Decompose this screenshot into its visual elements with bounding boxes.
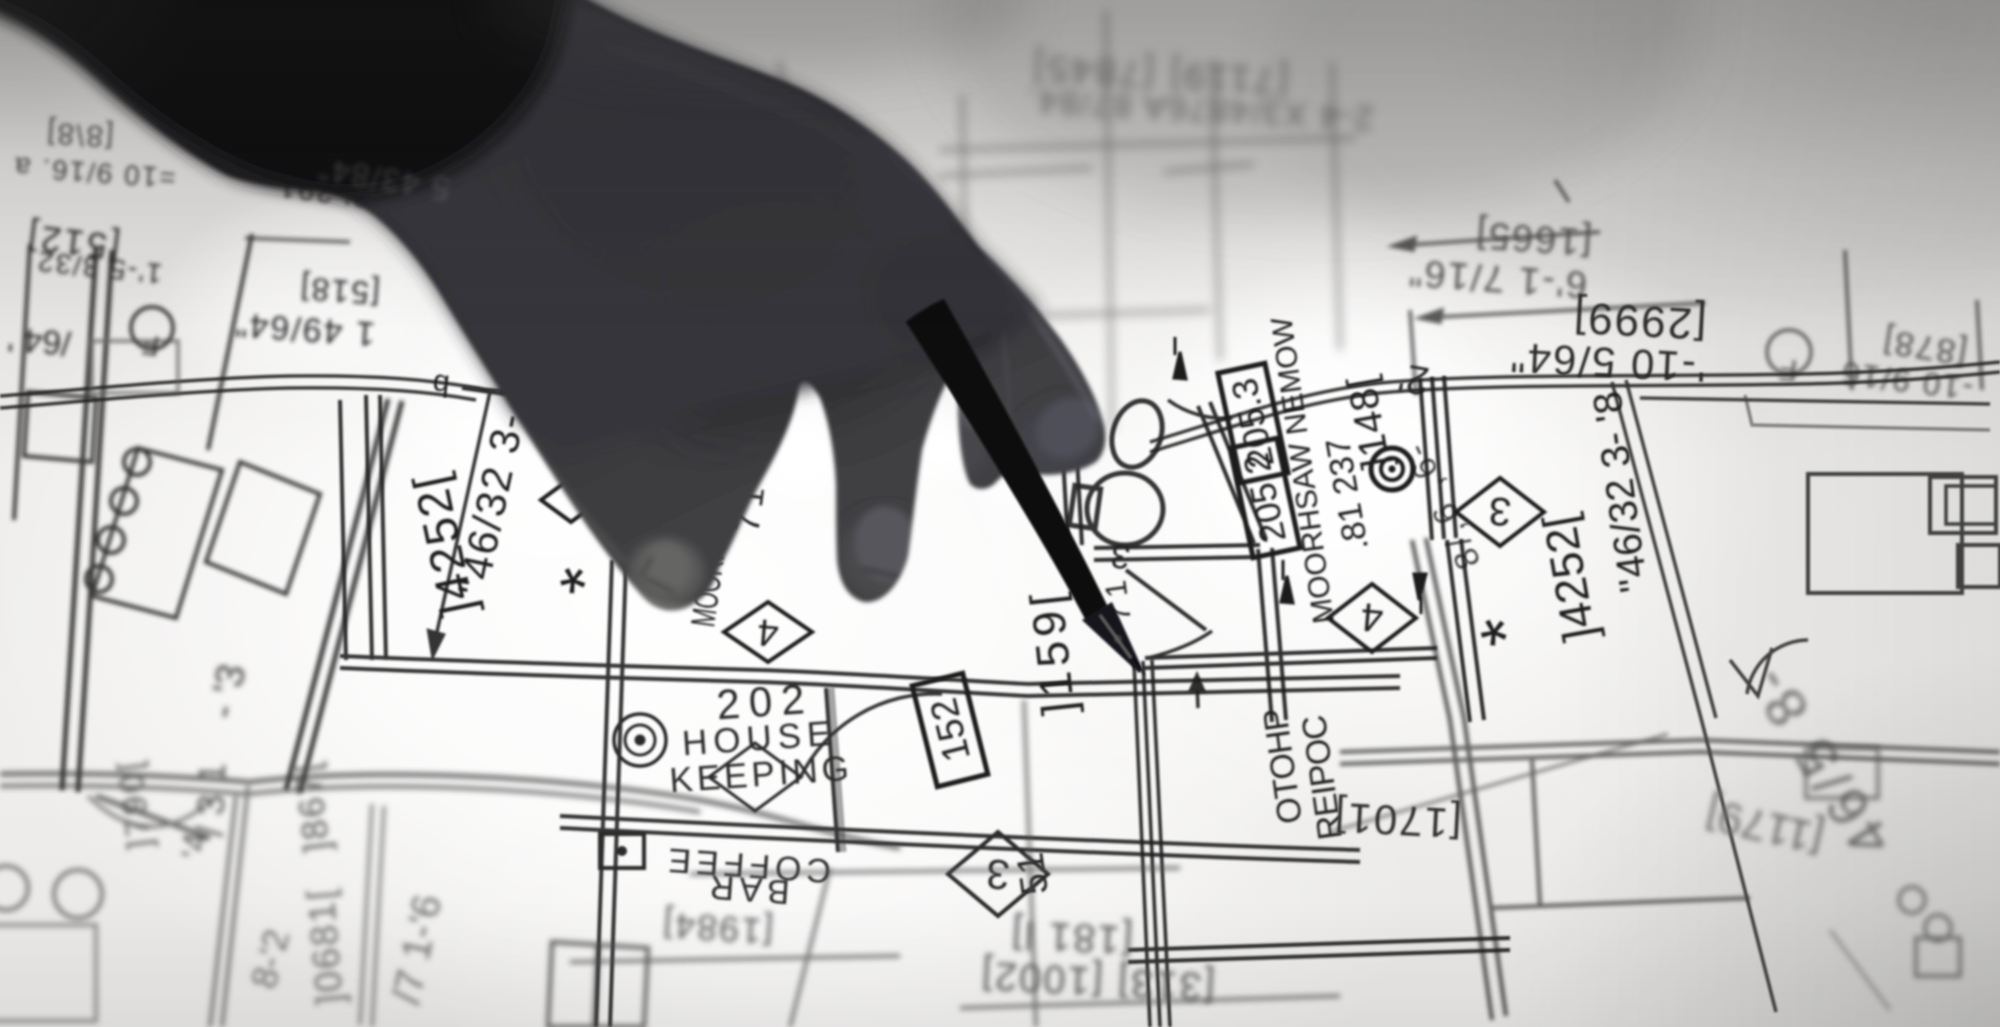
svg-text:3: 3 bbox=[1487, 488, 1513, 534]
svg-text:[1701]: [1701] bbox=[1332, 794, 1463, 848]
svg-text:4: 4 bbox=[1359, 594, 1385, 640]
svg-text:4: 4 bbox=[756, 610, 781, 654]
svg-text:b: b bbox=[431, 367, 451, 402]
svg-text:'4: '4 bbox=[175, 831, 215, 860]
svg-text:3: 3 bbox=[984, 850, 1011, 899]
